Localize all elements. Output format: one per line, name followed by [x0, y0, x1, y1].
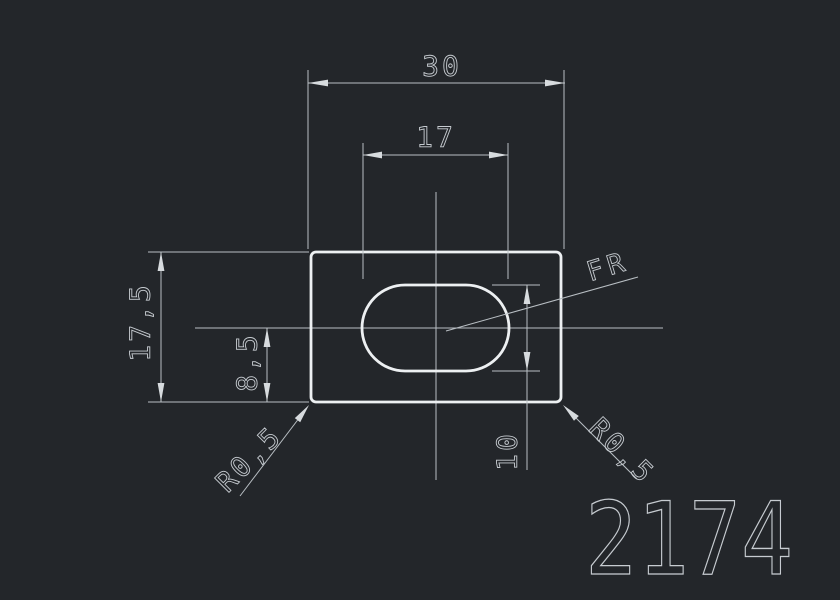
arrowhead-top	[524, 285, 531, 304]
dimension-overall-height: 17,5	[124, 252, 310, 402]
fillet-right-value: R0,5	[582, 411, 662, 491]
arrowhead-bottom	[524, 352, 531, 371]
arrowhead-left	[308, 80, 328, 87]
arrowhead-top	[264, 328, 271, 347]
part-number: 2174	[585, 480, 793, 598]
dim-slot-width-value: 17	[416, 121, 456, 154]
dim-overall-height-value: 17,5	[124, 282, 157, 361]
arrowhead-bottom	[264, 383, 271, 402]
fillet-left-callout: R0,5	[209, 405, 309, 499]
arrowhead	[295, 405, 309, 422]
note-fr-leader: FR	[446, 246, 638, 331]
arrowhead-right	[489, 152, 508, 159]
fillet-right-callout: R0,5	[563, 405, 662, 491]
technical-drawing: 30 17 17,5 8,5	[0, 0, 840, 600]
dim-slot-height-value: 10	[491, 431, 524, 471]
arrowhead-left	[363, 152, 382, 159]
dim-centerline-to-bottom-value: 8,5	[231, 332, 264, 392]
arrowhead-right	[545, 80, 565, 87]
cad-viewport: 30 17 17,5 8,5	[0, 0, 840, 600]
arrowhead-bottom	[158, 383, 165, 402]
dimension-centerline-to-bottom: 8,5	[231, 328, 271, 402]
fillet-left-value: R0,5	[209, 419, 289, 499]
arrowhead-top	[158, 252, 165, 271]
dim-overall-width-value: 30	[422, 50, 462, 83]
note-fr-label: FR	[583, 246, 633, 288]
dimension-slot-height: 10	[491, 285, 541, 471]
